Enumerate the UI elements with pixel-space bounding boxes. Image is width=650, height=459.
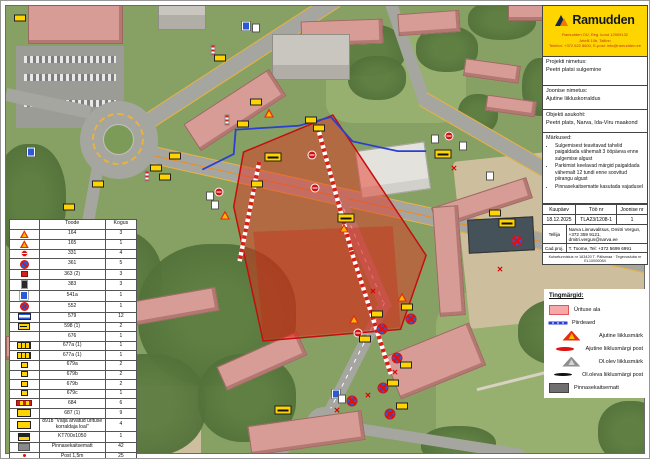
plan-sheet: Toode Kogus 1643165133143615363 (2)33833…: [0, 0, 650, 459]
table-row: 541a1: [10, 290, 137, 301]
icon-column-header: [10, 220, 40, 230]
map-sign-y-icon: [92, 181, 104, 188]
toode-cell: 552: [39, 301, 105, 312]
map-sign-ns-icon: [512, 236, 523, 247]
notes-box: Märkused: Sulgemisest teavitavad tahvlid…: [542, 132, 648, 204]
kogus-cell: 6: [105, 399, 136, 409]
legend-item-label: Ajutine liiklusmärk: [599, 333, 643, 339]
map-legend-title: Tingmärgid:: [549, 293, 643, 299]
kogus-cell: 3: [105, 279, 136, 290]
drawing-name-label: Joonise nimetus:: [546, 88, 644, 95]
toode-cell: 579: [39, 312, 105, 322]
map-sign-y-icon: [63, 204, 75, 211]
map-sign-y-icon: [14, 15, 26, 22]
map-sign-yb-icon: [435, 150, 452, 159]
company-contact: Ramudden OÜ, Reg. kood 12909132 Artelli …: [546, 32, 644, 48]
legend-item-label: Pinnasekaitsematt: [574, 385, 619, 391]
toode-cell: 684: [39, 399, 105, 409]
object-location-label: Objekti asukoht:: [546, 112, 644, 119]
table-row: 6761: [10, 332, 137, 342]
toode-cell: 677a (1): [39, 341, 105, 351]
kogus-cell: 25: [105, 452, 136, 459]
toode-cell: 598 (1): [39, 322, 105, 332]
table-row: 679c1: [10, 389, 137, 399]
kogus-cell: 1: [105, 389, 136, 399]
map-sign-x-icon: [497, 259, 504, 277]
note-item: Sulgemisest teavitavad tahvlid paigaldad…: [555, 143, 644, 162]
table-row: 687 (1)9: [10, 408, 137, 418]
map-sign-b-icon: [27, 148, 35, 157]
table-row: 677a (1)1: [10, 351, 137, 361]
kogus-cell: 1: [105, 301, 136, 312]
map-sign-y-icon: [237, 121, 249, 128]
map-sign-ns-icon: [385, 409, 396, 420]
toode-cell: 165: [39, 239, 105, 249]
kogus-cell: 42: [105, 442, 136, 452]
li-postr-icon: [23, 454, 26, 457]
toode-cell: 687 (1): [39, 408, 105, 418]
map-sign-y-icon: [159, 174, 171, 181]
li-bluex-icon: [20, 302, 29, 311]
tm-dotr-icon: [556, 347, 574, 351]
kogus-cell: 12: [105, 312, 136, 322]
map-sign-x-icon: [334, 400, 341, 418]
toode-cell: 361: [39, 259, 105, 270]
map-sign-yb-icon: [499, 219, 516, 228]
map-sign-y-icon: [251, 181, 263, 188]
li-ysm-icon: [21, 371, 28, 377]
map-sign-ns-icon: [377, 324, 388, 335]
map-sign-x-icon: [451, 158, 458, 176]
map-sign-y-icon: [371, 311, 383, 318]
toode-cell: Post 1,5m: [39, 452, 105, 459]
li-warn-icon: [20, 230, 29, 238]
toode-cell: 383: [39, 279, 105, 290]
toode-cell: 164: [39, 229, 105, 239]
toode-column-header: Toode: [39, 220, 105, 230]
legend-item: Ürituse ala: [549, 303, 643, 316]
map-sign-y-icon: [400, 362, 412, 369]
li-ysm-icon: [21, 381, 28, 387]
table-row: 677a (1)1: [10, 341, 137, 351]
company-header: Ramudden Ramudden OÜ, Reg. kood 12909132…: [542, 5, 648, 57]
map-sign-y-icon: [250, 99, 262, 106]
drawing-name-value: Ajutine liikluskorraldus: [546, 96, 600, 102]
product-table-body: 1643165133143615363 (2)33833541a15521579…: [10, 229, 137, 459]
toode-cell: 679b: [39, 370, 105, 380]
map-sign-ns-icon: [406, 314, 417, 325]
notes-list: Sulgemisest teavitavad tahvlid paigaldad…: [555, 143, 644, 190]
map-sign-y-icon: [387, 380, 399, 387]
toode-cell: 676: [39, 332, 105, 342]
tm-dotk-icon: [554, 373, 572, 376]
meta-table: Kuupäev Töö nr Joonise nr 18.12.2025 TLA…: [542, 204, 648, 225]
map-sign-w-icon: [397, 293, 407, 302]
legend-item-label: Ol.oleva liiklusmärgi post: [582, 372, 643, 378]
legend-item: Ol.oleva liiklusmärgi post: [549, 368, 643, 381]
toode-cell: Pinnasekaitsematt: [39, 442, 105, 452]
note-item: Pinnasekaitsematte kasutada vajadusel: [555, 184, 644, 190]
table-row: 598 (1)2: [10, 322, 137, 332]
date-header: Kuupäev: [543, 205, 576, 215]
map-sign-x-icon: [392, 362, 399, 380]
table-row: 57912: [10, 312, 137, 322]
drawingnr-value: 1: [617, 215, 648, 225]
li-flag-icon: [21, 271, 28, 277]
table-row: 891b "Välja arvatud ürituse korraldaja l…: [10, 418, 137, 432]
kogus-cell: 1: [105, 239, 136, 249]
project-name-value: Peetri platsi sulgemine: [546, 67, 601, 73]
table-row: 6846: [10, 399, 137, 409]
toode-cell: 331: [39, 249, 105, 259]
worknr-header: Töö nr: [576, 205, 617, 215]
map-sign-wt-icon: [431, 135, 439, 144]
client-label: Tellija: [543, 225, 567, 244]
drawingnr-header: Joonise nr: [617, 205, 648, 215]
product-quantity-table: Toode Kogus 1643165133143615363 (2)33833…: [9, 219, 137, 459]
legend-item: Pinnasekaitsematt: [549, 381, 643, 394]
map-sign-y-icon: [489, 210, 501, 217]
kogus-cell: 2: [105, 370, 136, 380]
li-np-icon: [20, 260, 29, 269]
map-sign-x-icon: [370, 281, 377, 299]
tm-fence-icon: [549, 322, 567, 324]
table-row: 679a2: [10, 360, 137, 370]
contacts-table: Tellija Narva Linnavalitsus, Dmitri Verg…: [542, 224, 648, 253]
map-sign-wt-icon: [486, 172, 494, 181]
kogus-cell: 4: [105, 418, 136, 432]
kogus-cell: 9: [105, 408, 136, 418]
object-location-value: Peetri plats, Narva, Ida-Viru maakond: [546, 120, 638, 126]
map-sign-y-icon: [401, 304, 413, 311]
table-row: KT700x10501: [10, 432, 137, 442]
drawing-name-box: Joonise nimetus: Ajutine liikluskorraldu…: [542, 85, 648, 110]
table-row: 3833: [10, 279, 137, 290]
legend-item: Ol.olev liiklusmärk: [549, 355, 643, 368]
table-row: 1643: [10, 229, 137, 239]
map-sign-ns-icon: [378, 383, 389, 394]
project-name-label: Projekti nimetus:: [546, 59, 644, 66]
li-ys-icon: [17, 342, 31, 349]
toode-cell: 679b: [39, 380, 105, 390]
table-row: 679b2: [10, 370, 137, 380]
li-ya-icon: [18, 323, 30, 330]
map-sign-y-icon: [313, 125, 325, 132]
kogus-cell: 4: [105, 249, 136, 259]
toode-cell: KT700x1050: [39, 432, 105, 442]
tm-gtri-icon: [562, 357, 580, 367]
table-row: 1651: [10, 239, 137, 249]
table-row: 3314: [10, 249, 137, 259]
li-kt-icon: [18, 433, 30, 441]
kogus-column-header: Kogus: [105, 220, 136, 230]
map-sign-ne-icon: [308, 151, 317, 160]
object-location-box: Objekti asukoht: Peetri plats, Narva, Id…: [542, 109, 648, 133]
legend-item: Piirdeaed: [549, 316, 643, 329]
legend-item: Ajutine liiklusmärgi post: [549, 342, 643, 355]
brand-row: Ramudden: [546, 12, 644, 28]
li-ne-icon: [21, 250, 28, 257]
table-row: 679b2: [10, 380, 137, 390]
notes-label: Märkused:: [546, 135, 644, 142]
map-sign-w-icon: [339, 224, 349, 233]
table-row: 5521: [10, 301, 137, 312]
kogus-cell: 2: [105, 360, 136, 370]
map-sign-w-icon: [349, 315, 359, 324]
kogus-cell: 5: [105, 259, 136, 270]
map-sign-wt-icon: [252, 24, 260, 33]
li-yw-icon: [17, 409, 31, 417]
map-sign-yb-icon: [275, 406, 292, 415]
map-sign-y-icon: [150, 165, 162, 172]
li-yw-icon: [17, 421, 31, 429]
contact-line: Telefon: +372 622 8600, E-post: info@ram…: [546, 43, 644, 48]
toode-cell: 891b "Välja arvatud ürituse korraldaja l…: [39, 418, 105, 432]
legend-item-label: Ajutine liiklusmärgi post: [586, 346, 643, 352]
map-legend: Tingmärgid: Ürituse alaPiirdeaedAjutine …: [544, 289, 648, 398]
map-sign-wt-icon: [459, 142, 467, 151]
table-row: Post 1,5m25: [10, 452, 137, 459]
tm-mat-icon: [549, 383, 569, 393]
note-item: Parkimist keelavad märgid paigaldada väh…: [555, 163, 644, 182]
kogus-cell: 1: [105, 351, 136, 361]
legend-item-label: Piirdeaed: [572, 320, 595, 326]
kogus-cell: 1: [105, 341, 136, 351]
map-sign-w-icon: [220, 211, 230, 220]
map-sign-yb-icon: [265, 153, 282, 162]
li-ysm-icon: [21, 362, 28, 368]
legend-item: Ajutine liiklusmärk: [549, 329, 643, 342]
map-sign-x-icon: [365, 385, 372, 403]
li-bluew-icon: [18, 313, 31, 320]
map-sign-wt-icon: [206, 192, 214, 201]
map-sign-ns-icon: [347, 396, 358, 407]
map-sign-w-icon: [264, 109, 274, 118]
brand-name: Ramudden: [572, 12, 634, 28]
map-sign-y-icon: [169, 153, 181, 160]
table-row: 3615: [10, 259, 137, 270]
tm-event-icon: [549, 305, 569, 315]
map-sign-y-icon: [396, 403, 408, 410]
kogus-cell: 2: [105, 322, 136, 332]
project-name-box: Projekti nimetus: Peetri platsi sulgemin…: [542, 56, 648, 86]
map-sign-wt-icon: [211, 201, 219, 210]
table-row: 363 (2)3: [10, 270, 137, 280]
toode-cell: 679a: [39, 360, 105, 370]
ramudden-logo-icon: [555, 14, 569, 26]
li-ysm-icon: [21, 390, 28, 396]
map-sign-y-icon: [305, 117, 317, 124]
map-sign-yb-icon: [338, 214, 355, 223]
map-sign-ne-icon: [311, 184, 320, 193]
li-dark-icon: [21, 280, 28, 289]
map-sign-y-icon: [359, 336, 371, 343]
map-sign-ne-icon: [215, 188, 224, 197]
map-sign-b-icon: [242, 22, 250, 31]
toode-cell: 679c: [39, 389, 105, 399]
li-blue-icon: [20, 291, 28, 300]
map-sign-c-icon: [145, 171, 150, 182]
tm-warn-icon: [562, 331, 580, 341]
map-sign-c-icon: [225, 115, 230, 126]
toode-cell: 363 (2): [39, 270, 105, 280]
map-legend-items: Ürituse alaPiirdeaedAjutine liiklusmärkA…: [549, 303, 643, 394]
title-block: Ramudden Ramudden OÜ, Reg. kood 12909132…: [542, 6, 648, 265]
legend-item-label: Ürituse ala: [574, 307, 600, 313]
kogus-cell: 3: [105, 270, 136, 280]
kogus-cell: 2: [105, 380, 136, 390]
toode-cell: 541a: [39, 290, 105, 301]
li-warn-icon: [20, 240, 29, 248]
li-gray-icon: [18, 443, 30, 451]
kogus-cell: 1: [105, 290, 136, 301]
kogus-cell: 3: [105, 229, 136, 239]
table-row: Pinnasekaitsematt42: [10, 442, 137, 452]
map-sign-y-icon: [214, 55, 226, 62]
kogus-cell: 1: [105, 432, 136, 442]
worknr-value: TLA23/1208-1: [576, 215, 617, 225]
li-ryb-icon: [16, 400, 32, 406]
certification-fineprint: Kutsetunnistus nr 163420 T. Pälismaa · T…: [542, 252, 648, 265]
toode-cell: 677a (1): [39, 351, 105, 361]
date-value: 18.12.2025: [543, 215, 576, 225]
legend-item-label: Ol.olev liiklusmärk: [599, 359, 643, 365]
product-table-header: Toode Kogus: [10, 220, 137, 230]
kogus-cell: 1: [105, 332, 136, 342]
client-value: Narva Linnavalitsus, Dmitri Vergun, +372…: [566, 225, 647, 244]
li-ys-icon: [17, 352, 31, 359]
map-sign-ne-icon: [445, 132, 454, 141]
